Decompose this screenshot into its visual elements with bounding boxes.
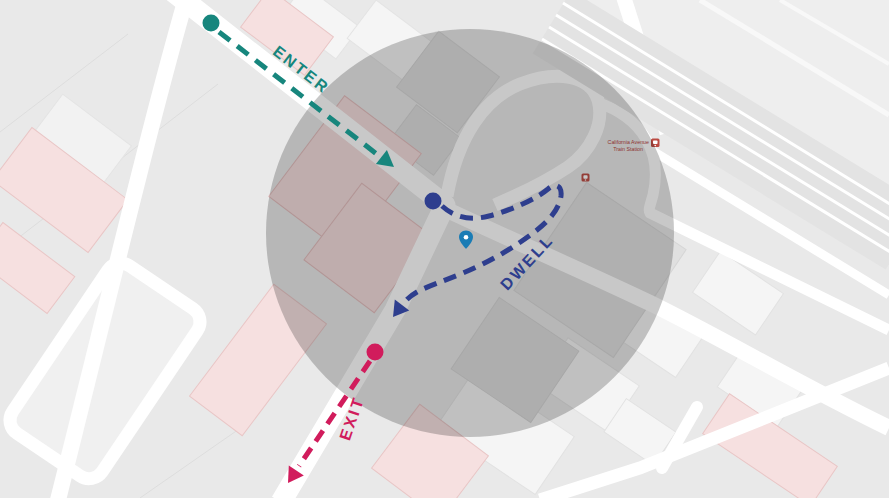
map-canvas: California Avenue Train Station ENTER DW… — [0, 0, 889, 498]
exit-start-dot — [367, 344, 384, 361]
map-illustration: California Avenue Train Station ENTER DW… — [0, 0, 889, 498]
enter-start-dot — [203, 15, 220, 32]
dwell-start-dot — [425, 193, 442, 210]
